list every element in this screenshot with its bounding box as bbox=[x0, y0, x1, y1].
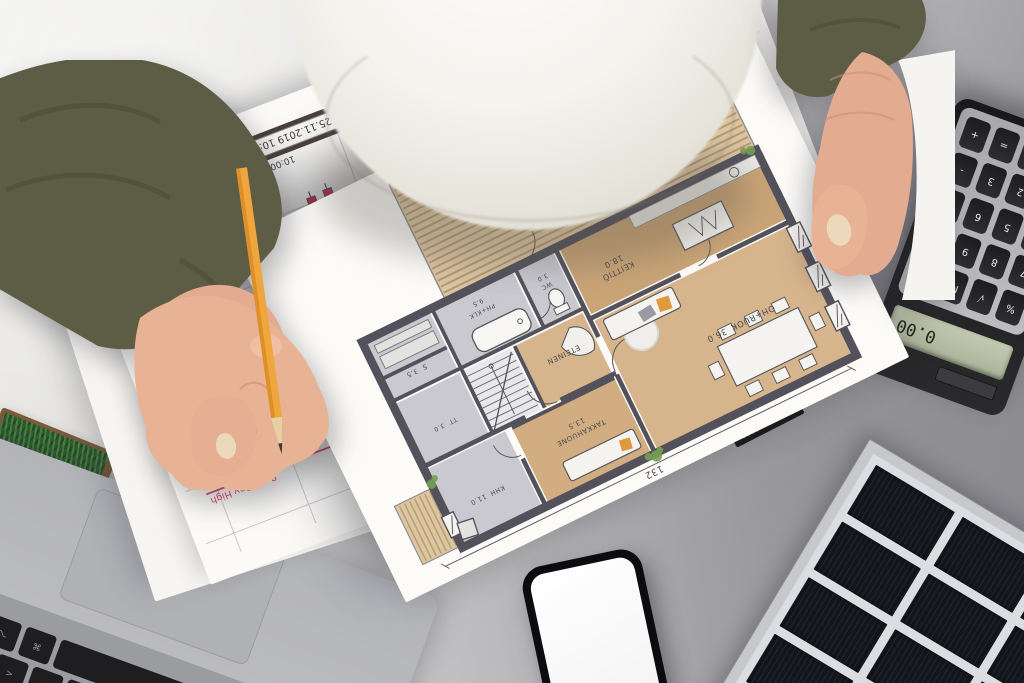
calc-key: 6 bbox=[961, 197, 995, 235]
dimension-label: 132 bbox=[643, 462, 665, 481]
left-hand-with-pencil bbox=[0, 60, 350, 490]
calc-key: 2 bbox=[1003, 172, 1024, 210]
calc-key: % bbox=[994, 289, 1024, 327]
laptop-key bbox=[52, 639, 194, 683]
desk-scene: ⇧ZXCVBNM<>?⇧fn⌃⌥⌘⌘⌥◀▼▶ Prev. Day HighPre… bbox=[0, 0, 1024, 683]
laptop-key: ⌘ bbox=[17, 626, 57, 665]
smartphone-screen bbox=[528, 555, 668, 683]
calc-key: 7 bbox=[1007, 253, 1024, 291]
calc-key: + bbox=[958, 116, 992, 154]
smartphone bbox=[519, 545, 678, 683]
laptop-key: < bbox=[0, 653, 30, 683]
calc-key: 8 bbox=[978, 243, 1012, 281]
calc-key: = bbox=[987, 126, 1021, 164]
calc-key: 3 bbox=[974, 162, 1008, 200]
solar-cells bbox=[678, 465, 1024, 683]
solar-panel bbox=[654, 440, 1024, 683]
right-hand bbox=[770, 0, 955, 300]
hard-hat-brim bbox=[325, 14, 735, 222]
calc-key: 5 bbox=[990, 207, 1024, 245]
calc-key: √ bbox=[965, 278, 999, 316]
